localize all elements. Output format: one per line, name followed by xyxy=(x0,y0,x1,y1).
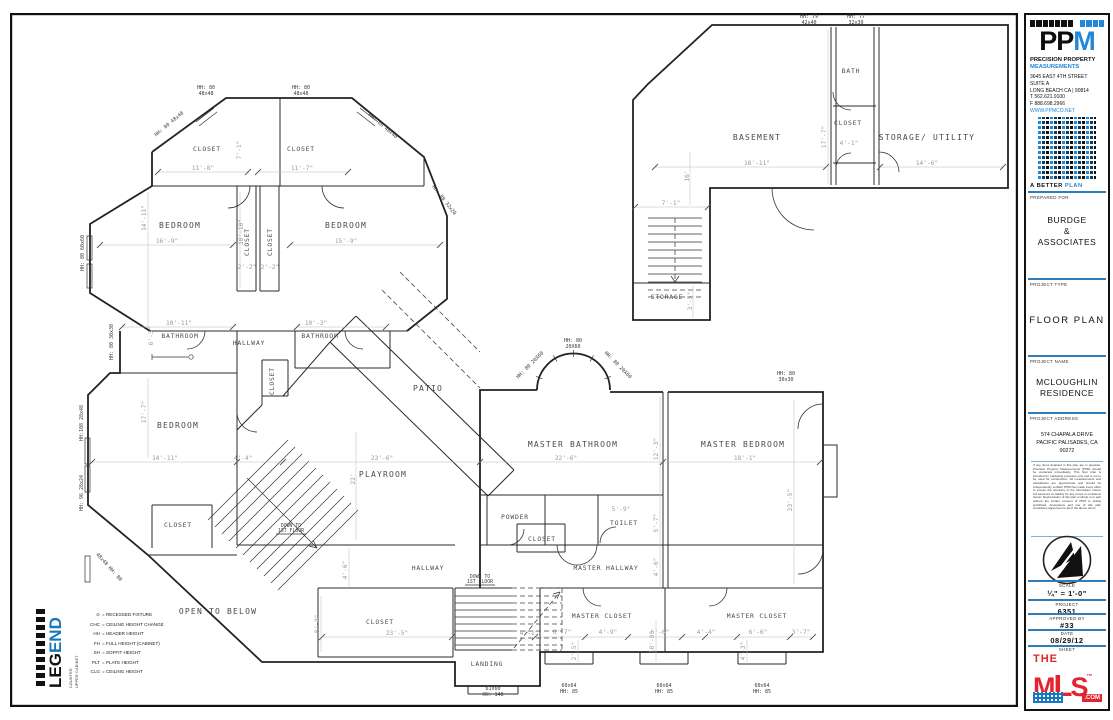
dim-label: 6'-6" xyxy=(749,629,768,636)
room-label: CLOSET xyxy=(268,367,276,395)
room-label: BASEMENT xyxy=(733,133,781,142)
interior-walls xyxy=(120,27,879,694)
sheet-label: SHEET xyxy=(1026,647,1108,652)
room-label: MASTER CLOSET xyxy=(572,612,632,620)
window-label: HH: 148 xyxy=(482,692,503,698)
stair-note: 1ST FLOOR xyxy=(467,579,493,585)
room-label: CLOSET xyxy=(164,521,192,529)
dim-label: 14'-6" xyxy=(916,160,938,167)
address-line: T 562.621.9100 xyxy=(1030,94,1108,101)
legend-item: ⊙= RECESSED FIXTURE xyxy=(84,610,184,620)
dim-label: 8'-4" xyxy=(314,615,321,634)
room-label: TOILET xyxy=(610,519,638,527)
client-line: ASSOCIATES xyxy=(1026,237,1108,248)
legend-item-sym: CLG xyxy=(84,667,102,677)
dim-label: 16' xyxy=(684,170,691,181)
qr-mosaic xyxy=(1038,117,1096,179)
dim-label: 3'-5" xyxy=(687,292,694,311)
ppm-logo-m: M xyxy=(1073,26,1095,56)
room-label: MASTER BEDROOM xyxy=(701,440,785,449)
dim-label: 4'-4" xyxy=(697,629,716,636)
dim-label: 22' xyxy=(350,473,357,484)
dim-label: 23'-5" xyxy=(386,630,408,637)
legend-item: HH= HEADER HEIGHT xyxy=(84,629,184,639)
room-label: BATHROOM xyxy=(301,332,338,340)
room-label: LANDING xyxy=(471,660,504,668)
legend-item: FH= FULL HEIGHT (CABINET) xyxy=(84,639,184,649)
section-rule xyxy=(1028,355,1106,357)
dim-label: 10'-3" xyxy=(305,320,327,327)
room-label: CLOSET xyxy=(528,535,556,543)
section-rule xyxy=(1028,599,1106,601)
mls-com-badge: .COM xyxy=(1082,694,1102,702)
dim-label: 10'-11" xyxy=(166,320,192,327)
dim-label: 16'-9" xyxy=(156,238,178,245)
disclaimer-text: If any items depicted in this plan are i… xyxy=(1031,461,1103,537)
room-label: CLOSET xyxy=(193,145,221,153)
dim-label: 18'-11" xyxy=(744,160,770,167)
room-label: CLOSET xyxy=(287,145,315,153)
dimension-labels: 11'-8" 11'-7" 7'-1" 16'-9" 15'-9" 14'-11… xyxy=(141,126,938,661)
company-name-line2: MEASUREMENTS xyxy=(1026,64,1108,70)
dim-label: 4'-3" xyxy=(740,642,747,661)
window-label: HH: 85 xyxy=(753,689,771,695)
address-line: LONG BEACH CA | 90814 xyxy=(1030,88,1108,95)
mls-logo: THE MLS™ .COM xyxy=(1031,654,1103,704)
client-line: & xyxy=(1026,226,1108,237)
dim-label: 11'-7" xyxy=(291,165,313,172)
dim-label: 2'-5" xyxy=(571,642,578,661)
legend-item: CHC= CEILING HEIGHT CHANGE xyxy=(84,620,184,630)
room-label: POWDER xyxy=(501,513,529,521)
mls-tm: ™ xyxy=(1086,674,1092,680)
window-label: 48x48 xyxy=(198,91,213,97)
project-address-line: 90272 xyxy=(1026,447,1108,455)
legend-item: PLT= PLATE HEIGHT xyxy=(84,658,184,668)
dim-label: 12'-3" xyxy=(653,438,660,460)
dim-label: 3'-7" xyxy=(792,629,811,636)
address-line: F 888.698.2966 xyxy=(1030,101,1108,108)
tagline-blue: PLAN xyxy=(1065,183,1083,189)
room-label: BEDROOM xyxy=(325,221,367,230)
stair-note: 1ST FLOOR xyxy=(278,528,304,534)
project-name-line: RESIDENCE xyxy=(1026,388,1108,399)
project-address-label: PROJECT ADDRESS xyxy=(1026,416,1108,421)
project-type-label: PROJECT TYPE xyxy=(1026,282,1108,287)
window-label: HH: 85 xyxy=(560,689,578,695)
outer-walls xyxy=(88,25,1008,686)
room-label: BATHROOM xyxy=(161,332,198,340)
window-label: HH: 85 xyxy=(655,689,673,695)
client-line: BURDGE xyxy=(1026,215,1108,226)
date-value: 08/29/12 xyxy=(1026,636,1108,645)
project-name-value: MCLOUGHLIN RESIDENCE xyxy=(1026,377,1108,399)
dimension-lines xyxy=(92,30,1003,662)
project-address-value: 574 CHAPALA DRIVE PACIFIC PALISADES, CA … xyxy=(1026,431,1108,455)
legend-item-text: = SOFFIT HEIGHT xyxy=(102,648,141,658)
window-label: 48x48 xyxy=(293,91,308,97)
address-line: 3645 EAST 4TH STREET xyxy=(1030,74,1108,81)
mls-pixel-bars xyxy=(1033,692,1063,703)
window-label: 32x30 xyxy=(848,20,863,26)
window-label: HH: 80 48x48 xyxy=(367,112,399,140)
dim-label: 4'-6" xyxy=(342,561,349,580)
legend-item-text: = HEADER HEIGHT xyxy=(102,629,144,639)
tagline-black: A BETTER xyxy=(1030,183,1065,189)
legend-title-blue: END xyxy=(46,617,65,653)
legend-item-text: = CEILING HEIGHT CHANGE xyxy=(102,620,164,630)
dim-label: 15'-9" xyxy=(335,238,357,245)
room-label: STORAGE xyxy=(651,293,684,301)
dim-label: 10'-10" xyxy=(238,219,245,245)
mls-the: THE xyxy=(1031,654,1103,665)
tagline: A BETTER PLAN xyxy=(1026,183,1108,189)
legend-item-sym: FH xyxy=(84,639,102,649)
section-rule xyxy=(1028,613,1106,615)
dim-label: 2'-2" xyxy=(238,264,257,271)
legend-item-sym: PLT xyxy=(84,658,102,668)
dim-label: 2'-2" xyxy=(261,264,280,271)
legend-item-text: = CEILING HEIGHT xyxy=(102,667,143,677)
room-label: BATH xyxy=(842,67,861,75)
prepared-for-value: BURDGE & ASSOCIATES xyxy=(1026,215,1108,248)
window-label: HH:108 28x48 xyxy=(79,405,85,441)
dimension-ticks xyxy=(89,164,1006,640)
dim-label: 17'-7" xyxy=(141,401,148,423)
window-label: 42x40 xyxy=(801,20,816,26)
legend-item: SH= SOFFIT HEIGHT xyxy=(84,648,184,658)
dim-label: 5'-9" xyxy=(612,506,631,513)
section-rule xyxy=(1028,412,1106,414)
section-rule xyxy=(1028,278,1106,280)
company-website: WWW.PPMCO.NET xyxy=(1030,108,1108,115)
window-label: 48x48 HH: 80 xyxy=(94,552,123,583)
legend-item-text: = PLATE HEIGHT xyxy=(102,658,139,668)
legend-upper-cabinet-label: UPPER CABINET xyxy=(75,655,79,688)
dim-label: 14'-11" xyxy=(141,205,148,231)
scale-value: ¼" = 1'-0" xyxy=(1026,589,1108,598)
floor-plan-sheet: CLOSET CLOSET BEDROOM BEDROOM CLOSET CLO… xyxy=(0,0,1113,720)
legend-cabinet-labels: COUNTER UPPER CABINET xyxy=(68,608,80,688)
legend-counter-label: COUNTER xyxy=(69,668,73,688)
ppm-logo-pp: PP xyxy=(1039,26,1073,56)
dim-label: 6'-7" xyxy=(553,629,572,636)
project-type-value: FLOOR PLAN xyxy=(1026,315,1108,326)
legend-title: LEGEND xyxy=(46,604,66,688)
room-label: PATIO xyxy=(413,384,443,393)
window-labels: HH: 80 48x48 HH: 80 48x48 HH: 80 48x48 H… xyxy=(79,14,865,698)
room-label: CLOSET xyxy=(834,119,862,127)
project-address-line: 574 CHAPALA DRIVE xyxy=(1026,431,1108,439)
dim-label: 14'-11" xyxy=(152,455,178,462)
ppm-logo: PPM xyxy=(1026,28,1108,55)
section-rule xyxy=(1028,580,1106,582)
legend-item: CLG= CEILING HEIGHT xyxy=(84,667,184,677)
room-label: BEDROOM xyxy=(159,221,201,230)
legend: LEGEND COUNTER UPPER CABINET ⊙= RECESSED… xyxy=(36,598,186,693)
dim-label: 4'-6" xyxy=(653,558,660,577)
room-label: HALLWAY xyxy=(412,564,445,572)
room-label: PLAYROOM xyxy=(359,470,407,479)
room-label: MASTER CLOSET xyxy=(727,612,787,620)
legend-title-black: LEG xyxy=(46,653,65,688)
window-label: 30x30 xyxy=(778,377,793,383)
room-label: CLOSET xyxy=(366,618,394,626)
room-label: OPEN TO BELOW xyxy=(179,607,257,616)
project-name-label: PROJECT NAME xyxy=(1026,359,1108,364)
prepared-for-label: PREPARED FOR xyxy=(1026,195,1108,200)
room-label: BEDROOM xyxy=(157,421,199,430)
dim-label: 10'-9" xyxy=(649,631,656,653)
legend-item-text: = FULL HEIGHT (CABINET) xyxy=(102,639,160,649)
project-address-line: PACIFIC PALISADES, CA xyxy=(1026,439,1108,447)
recessed-fixture-icon: ⊙ xyxy=(84,610,102,620)
legend-items: ⊙= RECESSED FIXTURE CHC= CEILING HEIGHT … xyxy=(84,610,184,677)
dim-label: 22'-6" xyxy=(555,455,577,462)
dim-label: 7'-1" xyxy=(662,200,681,207)
room-label: MASTER BATHROOM xyxy=(528,440,618,449)
project-name-line: MCLOUGHLIN xyxy=(1026,377,1108,388)
title-block: PPM PRECISION PROPERTY MEASUREMENTS 3645… xyxy=(1024,13,1110,711)
window-label: HH: 80 48x48 xyxy=(154,110,186,138)
window-label: 20X60 xyxy=(565,344,580,350)
company-name-line1: PRECISION PROPERTY xyxy=(1026,57,1108,63)
legend-barcode xyxy=(36,606,45,686)
room-label: STORAGE/ UTILITY xyxy=(879,133,975,142)
window-label: HH: 80 32x20 xyxy=(430,184,457,216)
address-line: SUITE A xyxy=(1030,81,1108,88)
window-label: HH: 96 28x24 xyxy=(79,475,85,511)
legend-item-sym: CHC xyxy=(84,620,102,630)
window-label: HH: 80 60x60 xyxy=(80,235,86,271)
section-rule xyxy=(1028,191,1106,193)
room-label: MASTER HALLWAY xyxy=(573,564,638,572)
dim-label: 4'-1" xyxy=(520,630,539,637)
dim-label: 17'-7" xyxy=(821,126,828,148)
dim-label: 6'-3" xyxy=(148,327,155,346)
room-label: HALLWAY xyxy=(233,339,266,347)
dim-label: 18'-1" xyxy=(734,455,756,462)
dim-label: 4'-9" xyxy=(599,629,618,636)
dim-label: 23'-5" xyxy=(787,489,794,511)
legend-item-text: = RECESSED FIXTURE xyxy=(102,610,152,620)
north-arrow-icon xyxy=(1041,534,1093,586)
dim-label: 5'-7" xyxy=(653,514,660,533)
company-address: 3645 EAST 4TH STREET SUITE A LONG BEACH … xyxy=(1026,74,1108,115)
dim-label: 4'-4" xyxy=(234,455,253,462)
dim-label: 23'-6" xyxy=(371,455,393,462)
dim-label: 4'-1" xyxy=(840,140,859,147)
dim-label: 7'-1" xyxy=(236,141,243,160)
dim-label: 11'-8" xyxy=(192,165,214,172)
window-label: HH: 80 30x30 xyxy=(109,324,115,360)
scale-label: SCALE xyxy=(1026,583,1108,588)
legend-item-sym: HH xyxy=(84,629,102,639)
legend-item-sym: SH xyxy=(84,648,102,658)
room-label: CLOSET xyxy=(266,228,274,256)
